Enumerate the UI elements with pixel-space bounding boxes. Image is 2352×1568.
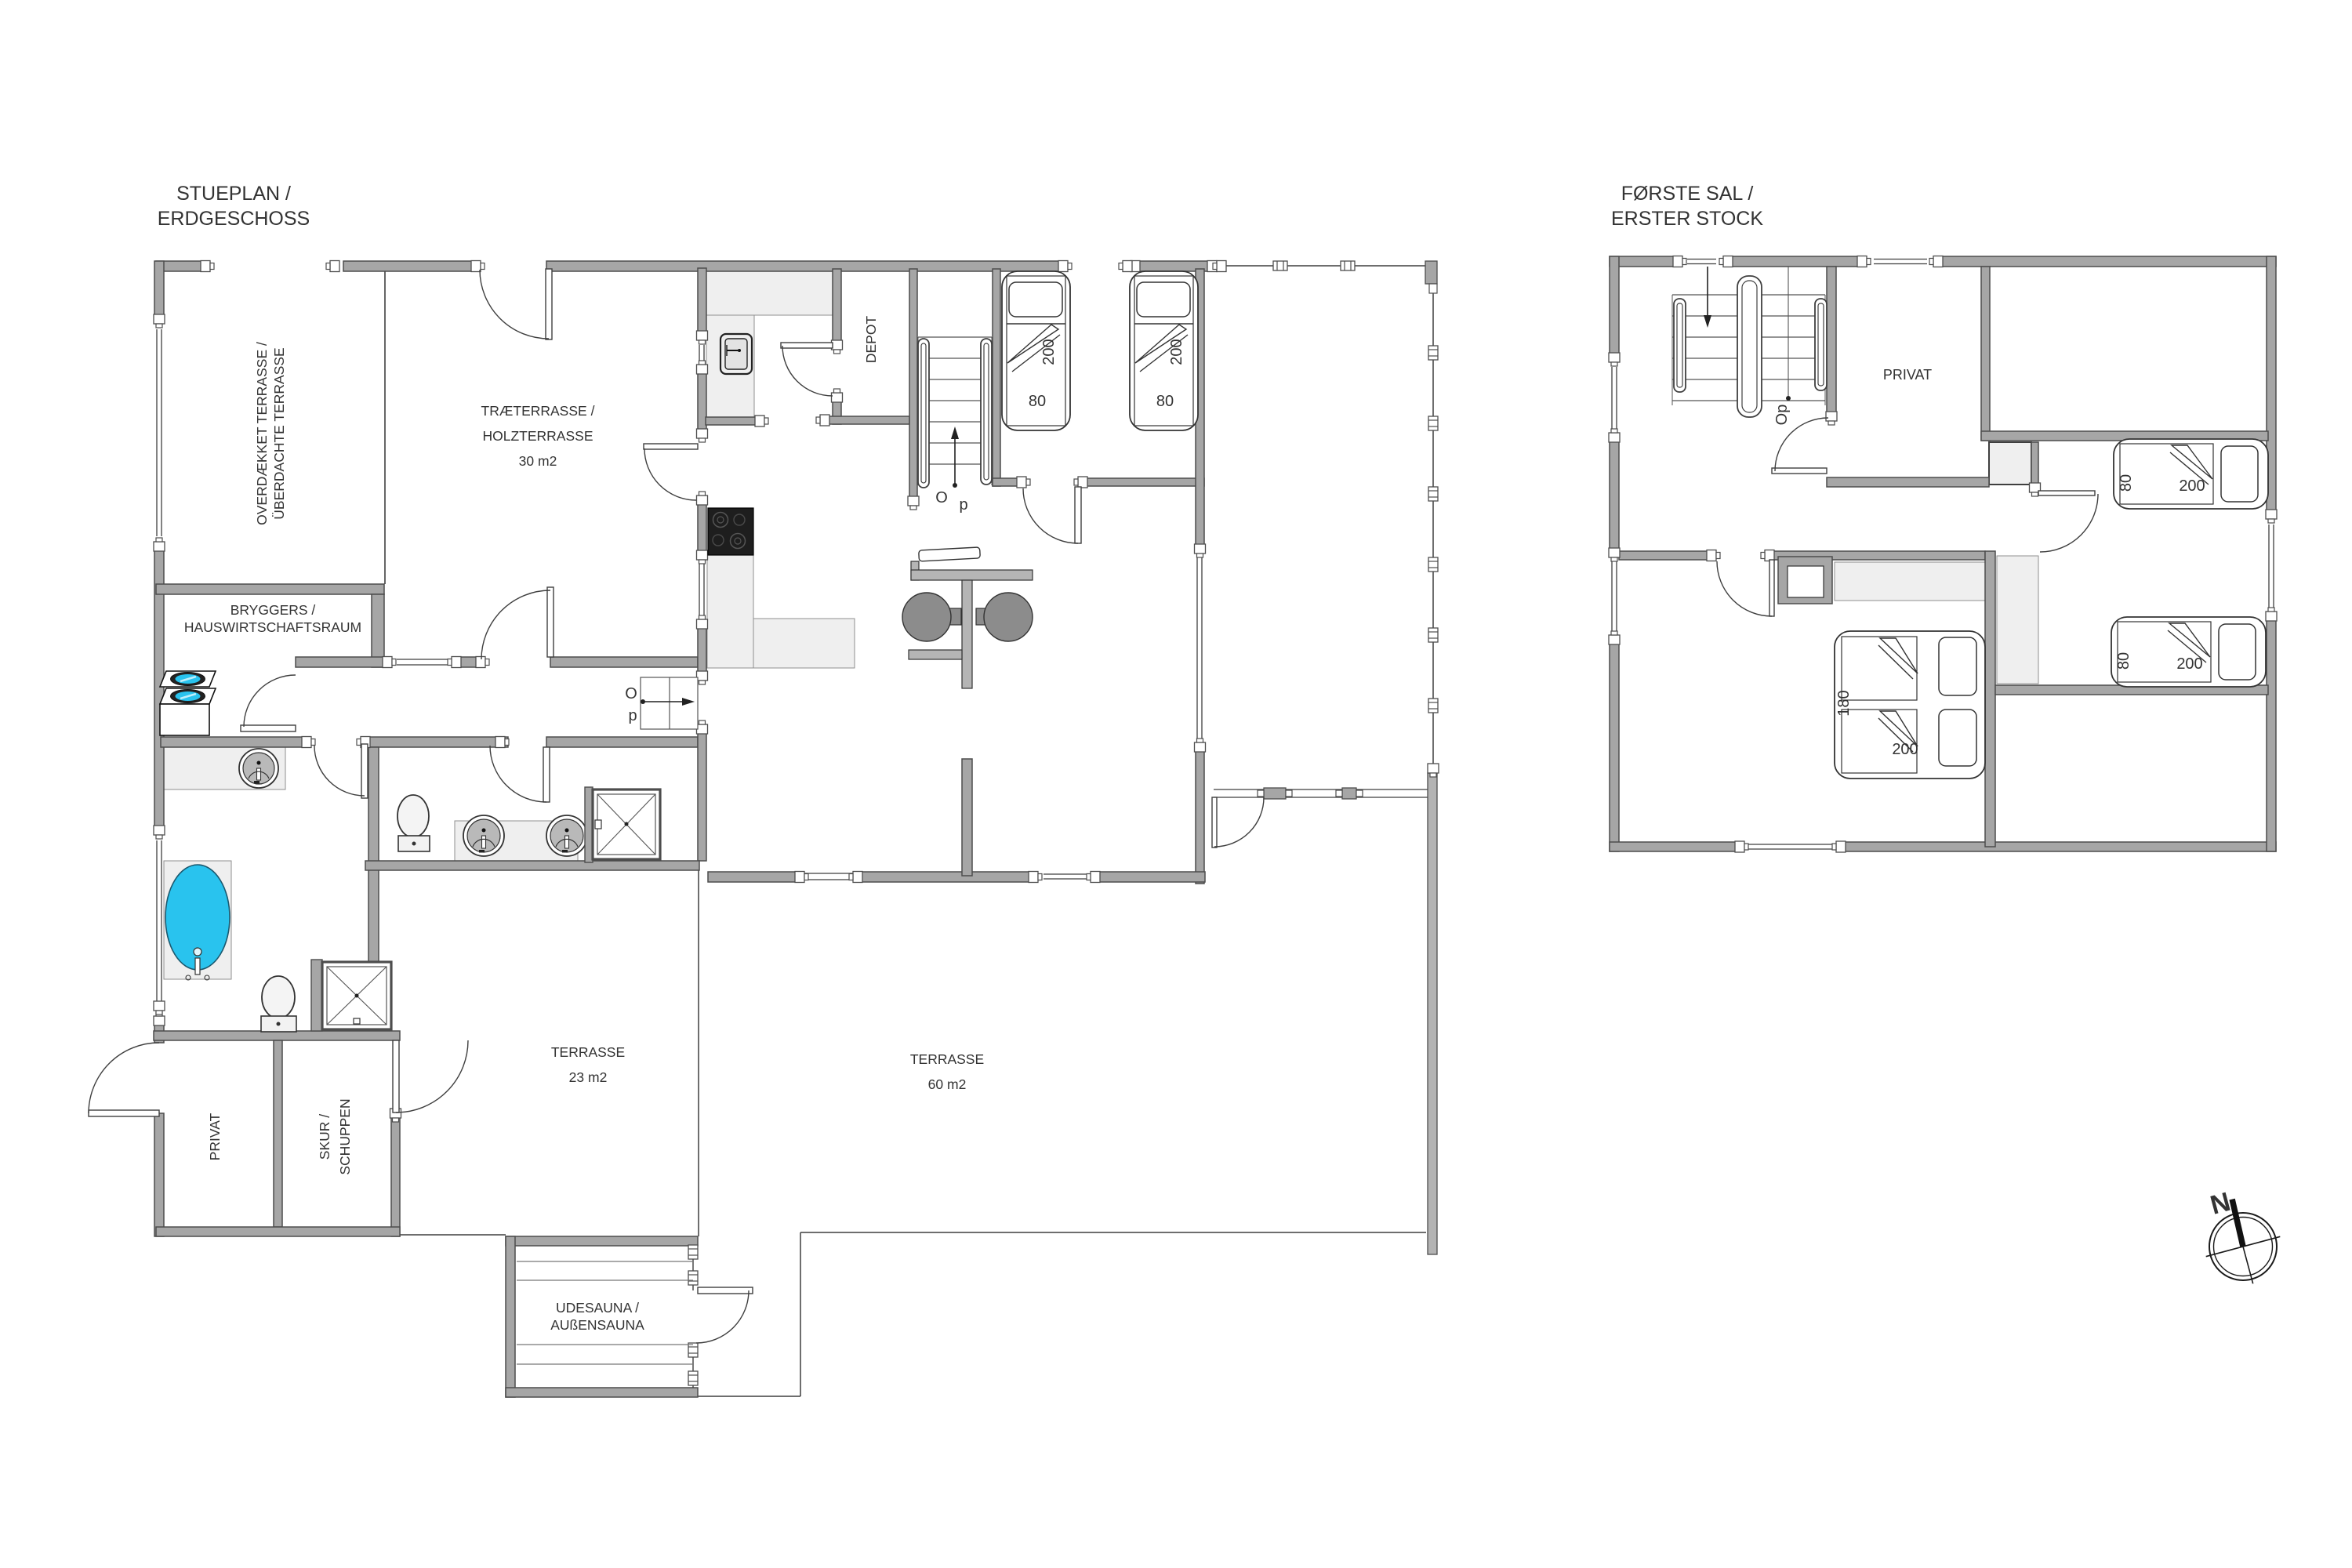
svg-text:FØRSTE SAL /: FØRSTE SAL / (1621, 183, 1754, 205)
svg-text:PRIVAT: PRIVAT (207, 1112, 223, 1160)
svg-text:200: 200 (1892, 741, 1918, 758)
svg-text:AUßENSAUNA: AUßENSAUNA (550, 1317, 644, 1333)
svg-text:23 m2: 23 m2 (569, 1069, 608, 1085)
svg-text:60 m2: 60 m2 (928, 1076, 967, 1092)
svg-text:STUEPLAN /: STUEPLAN / (176, 183, 291, 205)
svg-text:DEPOT: DEPOT (863, 316, 879, 364)
svg-text:ERSTER STOCK: ERSTER STOCK (1611, 208, 1763, 230)
svg-text:TRÆTERRASSE /: TRÆTERRASSE / (481, 403, 595, 419)
svg-text:UDESAUNA /: UDESAUNA / (556, 1300, 639, 1316)
svg-text:80: 80 (2118, 474, 2135, 492)
svg-text:p: p (628, 707, 637, 724)
svg-text:200: 200 (1168, 339, 1185, 365)
svg-text:ÜBERDACHTE TERRASSE: ÜBERDACHTE TERRASSE (271, 347, 287, 519)
svg-text:SCHUPPEN: SCHUPPEN (337, 1098, 353, 1174)
svg-text:p: p (959, 496, 967, 514)
svg-text:Op: Op (1773, 405, 1791, 426)
svg-text:80: 80 (1156, 393, 1174, 410)
svg-text:HAUSWIRTSCHAFTSRAUM: HAUSWIRTSCHAFTSRAUM (184, 619, 361, 635)
svg-text:PRIVAT: PRIVAT (1883, 367, 1932, 383)
svg-text:200: 200 (2176, 655, 2202, 673)
svg-text:SKUR /: SKUR / (317, 1114, 332, 1160)
svg-text:TERRASSE: TERRASSE (910, 1051, 984, 1067)
svg-text:180: 180 (1835, 690, 1853, 716)
svg-text:ERDGESCHOSS: ERDGESCHOSS (158, 208, 310, 230)
svg-text:200: 200 (2179, 477, 2205, 495)
svg-text:HOLZTERRASSE: HOLZTERRASSE (483, 428, 593, 444)
svg-text:TERRASSE: TERRASSE (551, 1044, 625, 1060)
svg-text:200: 200 (1040, 339, 1058, 365)
svg-text:O: O (625, 685, 637, 702)
svg-text:O: O (935, 489, 948, 506)
svg-text:30 m2: 30 m2 (519, 453, 557, 469)
svg-text:80: 80 (2115, 652, 2132, 670)
svg-text:BRYGGERS /: BRYGGERS / (230, 602, 316, 618)
svg-text:OVERDÆKKET TERRASSE /: OVERDÆKKET TERRASSE / (254, 342, 270, 525)
svg-text:80: 80 (1029, 393, 1046, 410)
